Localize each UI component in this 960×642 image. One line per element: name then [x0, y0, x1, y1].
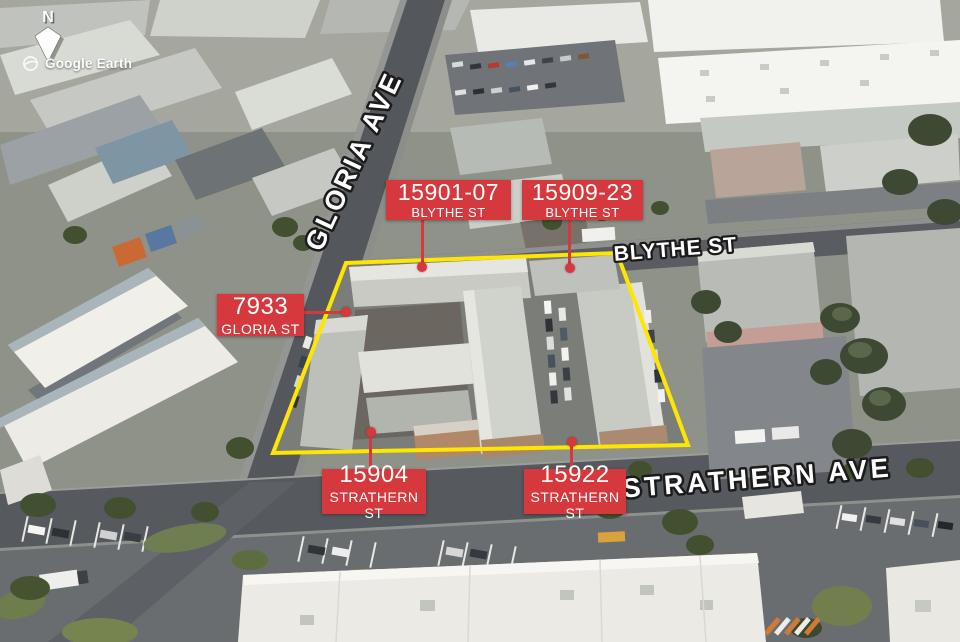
globe-icon [22, 55, 39, 72]
pointer-line [568, 216, 571, 269]
address-street: STRATHERN ST [322, 489, 426, 521]
address-label-15904-strathern: 15904 STRATHERN ST [322, 469, 426, 514]
aerial-view: GLORIA AVE BLYTHE ST STRATHERN AVE 15901… [0, 0, 960, 642]
north-label: N [42, 9, 54, 26]
address-number: 15909-23 [532, 180, 633, 204]
pointer-dot [567, 437, 577, 447]
address-number: 15901-07 [398, 180, 499, 204]
address-label-15901-07-blythe: 15901-07 BLYTHE ST [386, 180, 511, 220]
address-street: BLYTHE ST [545, 205, 619, 220]
address-number: 15922 [540, 462, 609, 488]
address-street: STRATHERN ST [524, 489, 626, 521]
street-label-blythe-st: BLYTHE ST [613, 233, 738, 266]
address-label-7933-gloria: 7933 GLORIA ST [217, 294, 304, 336]
street-label-gloria-ave: GLORIA AVE [299, 67, 408, 256]
address-label-15922-strathern: 15922 STRATHERN ST [524, 469, 626, 514]
logo-text: Google Earth [45, 56, 132, 71]
pointer-line [303, 311, 346, 314]
address-street: GLORIA ST [221, 321, 299, 337]
street-label-strathern-ave: STRATHERN AVE [622, 452, 894, 503]
pointer-line [421, 216, 424, 268]
address-number: 15904 [339, 462, 408, 488]
pointer-dot [417, 262, 427, 272]
address-street: BLYTHE ST [411, 205, 485, 220]
property-boundary-outline [273, 253, 688, 453]
address-number: 7933 [233, 294, 288, 320]
address-label-15909-23-blythe: 15909-23 BLYTHE ST [522, 180, 643, 220]
pointer-dot [366, 427, 376, 437]
google-earth-logo: Google Earth [22, 55, 132, 72]
pointer-dot [565, 263, 575, 273]
pointer-dot [341, 307, 351, 317]
